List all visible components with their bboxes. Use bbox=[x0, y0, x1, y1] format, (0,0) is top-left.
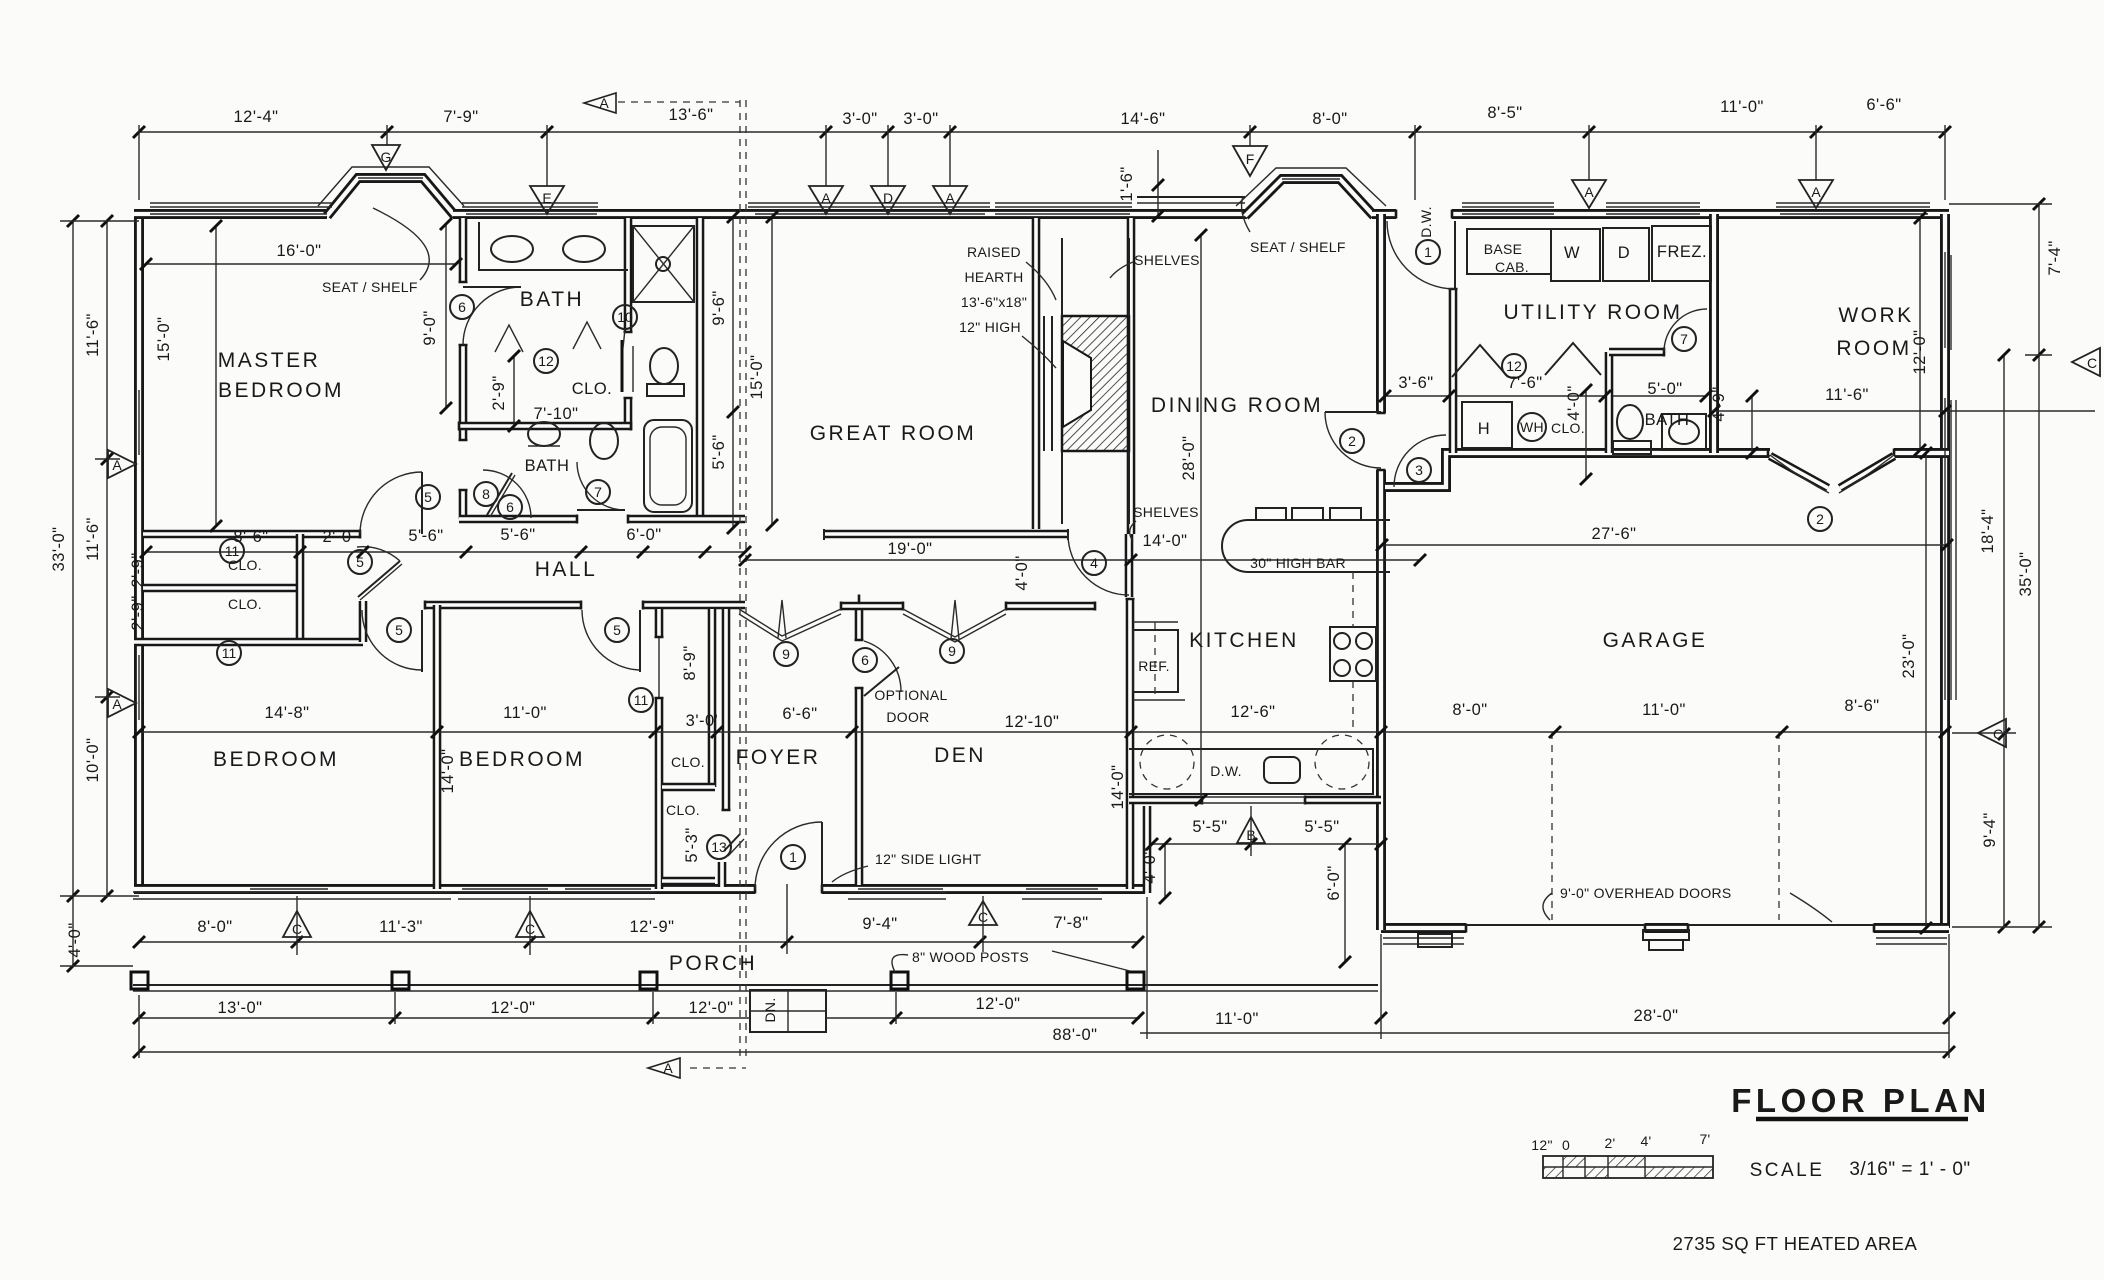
svg-text:5: 5 bbox=[395, 622, 403, 638]
svg-text:7'-6": 7'-6" bbox=[1507, 374, 1542, 392]
svg-text:11'-6": 11'-6" bbox=[84, 517, 102, 561]
svg-text:D.W.: D.W. bbox=[1418, 206, 1434, 238]
svg-text:12'-10": 12'-10" bbox=[1005, 713, 1060, 731]
svg-text:8'-6": 8'-6" bbox=[1844, 697, 1879, 715]
svg-text:CLO.: CLO. bbox=[572, 380, 613, 398]
svg-text:GREAT ROOM: GREAT ROOM bbox=[810, 422, 977, 445]
svg-text:9'-4": 9'-4" bbox=[1981, 812, 1999, 847]
svg-text:2'-9": 2'-9" bbox=[129, 595, 147, 630]
svg-text:7: 7 bbox=[1680, 331, 1688, 347]
svg-text:12'-0": 12'-0" bbox=[1911, 329, 1929, 374]
svg-text:8'-0": 8'-0" bbox=[197, 918, 232, 936]
svg-text:12'-0": 12'-0" bbox=[490, 999, 535, 1017]
svg-text:5'-6": 5'-6" bbox=[408, 527, 443, 545]
svg-text:A: A bbox=[663, 1060, 673, 1076]
svg-text:3: 3 bbox=[1415, 462, 1423, 478]
svg-text:12'-9": 12'-9" bbox=[629, 918, 674, 936]
svg-text:ROOM: ROOM bbox=[1836, 337, 1911, 360]
svg-text:MASTER: MASTER bbox=[218, 349, 321, 372]
svg-text:6'-0": 6'-0" bbox=[1325, 865, 1343, 900]
svg-text:FLOOR PLAN: FLOOR PLAN bbox=[1731, 1082, 1990, 1119]
svg-text:30" HIGH BAR: 30" HIGH BAR bbox=[1250, 555, 1346, 571]
svg-text:14'-6": 14'-6" bbox=[1120, 110, 1165, 128]
svg-text:8" WOOD POSTS: 8" WOOD POSTS bbox=[912, 949, 1029, 965]
svg-text:9: 9 bbox=[782, 646, 790, 662]
svg-text:8'-0": 8'-0" bbox=[1452, 701, 1487, 719]
svg-text:4'-0": 4'-0" bbox=[1565, 385, 1583, 420]
svg-text:FREZ.: FREZ. bbox=[1657, 243, 1707, 261]
svg-text:WORK: WORK bbox=[1838, 304, 1913, 327]
svg-text:14'-0": 14'-0" bbox=[1109, 764, 1127, 809]
svg-text:13: 13 bbox=[711, 839, 727, 855]
svg-text:1: 1 bbox=[789, 849, 797, 865]
svg-text:6'-6": 6'-6" bbox=[782, 705, 817, 723]
svg-text:27'-6": 27'-6" bbox=[1591, 525, 1636, 543]
svg-text:BATH: BATH bbox=[1645, 411, 1690, 429]
svg-text:12'-6": 12'-6" bbox=[1230, 703, 1275, 721]
svg-text:D: D bbox=[1618, 244, 1630, 262]
svg-text:CLO.: CLO. bbox=[228, 557, 262, 573]
svg-text:11: 11 bbox=[222, 645, 237, 661]
svg-text:5: 5 bbox=[424, 489, 432, 505]
svg-text:BATH: BATH bbox=[525, 457, 570, 475]
svg-text:7'-10": 7'-10" bbox=[533, 405, 578, 423]
svg-text:2: 2 bbox=[1348, 433, 1356, 449]
svg-text:4': 4' bbox=[1640, 1133, 1651, 1149]
svg-text:1'-6": 1'-6" bbox=[1118, 166, 1136, 201]
svg-text:12" HIGH: 12" HIGH bbox=[959, 319, 1021, 335]
svg-text:BASE: BASE bbox=[1484, 241, 1523, 257]
svg-text:SCALE: SCALE bbox=[1750, 1160, 1825, 1181]
svg-text:3'-6": 3'-6" bbox=[1398, 374, 1433, 392]
svg-text:BEDROOM: BEDROOM bbox=[459, 748, 585, 771]
svg-text:12'-0": 12'-0" bbox=[688, 999, 733, 1017]
svg-text:SHELVES: SHELVES bbox=[1134, 252, 1200, 268]
svg-text:4'-0": 4'-0" bbox=[1141, 848, 1159, 883]
svg-text:9: 9 bbox=[948, 643, 956, 659]
svg-text:12: 12 bbox=[1506, 358, 1522, 374]
svg-text:A: A bbox=[945, 190, 955, 206]
svg-text:8'-9": 8'-9" bbox=[681, 645, 699, 680]
svg-text:E: E bbox=[542, 190, 551, 206]
svg-text:8'-0": 8'-0" bbox=[1312, 110, 1347, 128]
svg-text:DEN: DEN bbox=[934, 744, 986, 767]
svg-text:A: A bbox=[112, 696, 122, 712]
svg-text:2: 2 bbox=[1816, 511, 1824, 527]
svg-text:9'-0" OVERHEAD DOORS: 9'-0" OVERHEAD DOORS bbox=[1560, 885, 1732, 901]
svg-text:10: 10 bbox=[617, 309, 633, 325]
svg-text:15'-0": 15'-0" bbox=[748, 354, 766, 399]
svg-text:13'-6"x18": 13'-6"x18" bbox=[961, 294, 1027, 310]
svg-text:BATH: BATH bbox=[520, 288, 584, 311]
svg-text:2'-9": 2'-9" bbox=[129, 552, 147, 587]
svg-text:5'-3": 5'-3" bbox=[683, 827, 701, 862]
svg-text:3'-0": 3'-0" bbox=[903, 110, 938, 128]
svg-text:12" SIDE LIGHT: 12" SIDE LIGHT bbox=[875, 851, 982, 867]
svg-text:OPTIONAL: OPTIONAL bbox=[874, 687, 947, 703]
svg-text:11'-0": 11'-0" bbox=[503, 704, 547, 722]
svg-text:19'-0": 19'-0" bbox=[887, 540, 932, 558]
svg-text:G: G bbox=[381, 149, 392, 165]
svg-text:7'-8": 7'-8" bbox=[1053, 914, 1088, 932]
svg-text:9'-0": 9'-0" bbox=[421, 310, 439, 345]
svg-text:11'-0": 11'-0" bbox=[1215, 1010, 1259, 1028]
svg-text:10'-0": 10'-0" bbox=[84, 737, 102, 782]
svg-text:16'-0": 16'-0" bbox=[276, 242, 321, 260]
svg-text:28'-0": 28'-0" bbox=[1633, 1007, 1678, 1025]
svg-text:4'-0": 4'-0" bbox=[1013, 555, 1031, 590]
svg-text:D: D bbox=[883, 190, 893, 206]
svg-text:GARAGE: GARAGE bbox=[1603, 629, 1708, 652]
svg-text:A: A bbox=[599, 95, 609, 111]
svg-text:C: C bbox=[1993, 726, 2003, 742]
svg-text:BEDROOM: BEDROOM bbox=[218, 379, 344, 402]
svg-text:11'-6": 11'-6" bbox=[84, 313, 102, 357]
svg-text:5'-0": 5'-0" bbox=[1647, 380, 1682, 398]
svg-text:REF.: REF. bbox=[1138, 658, 1170, 674]
svg-text:13'-6": 13'-6" bbox=[668, 106, 713, 124]
svg-text:DN.: DN. bbox=[762, 997, 778, 1022]
svg-text:0: 0 bbox=[1562, 1137, 1570, 1153]
svg-text:CLO.: CLO. bbox=[1551, 420, 1585, 436]
svg-text:1: 1 bbox=[1424, 244, 1432, 260]
svg-text:SEAT / SHELF: SEAT / SHELF bbox=[322, 279, 418, 295]
svg-text:H: H bbox=[1478, 420, 1490, 438]
svg-text:11'-6": 11'-6" bbox=[1825, 386, 1869, 404]
svg-text:8'-6": 8'-6" bbox=[233, 528, 268, 546]
svg-text:23'-0": 23'-0" bbox=[1900, 633, 1918, 678]
svg-text:4'-0": 4'-0" bbox=[66, 922, 84, 957]
svg-text:W: W bbox=[1564, 244, 1580, 262]
svg-text:HALL: HALL bbox=[535, 558, 598, 581]
svg-text:5: 5 bbox=[356, 554, 364, 570]
svg-text:4'-9": 4'-9" bbox=[1710, 386, 1728, 421]
svg-text:33'-0": 33'-0" bbox=[50, 526, 68, 571]
svg-text:3/16" = 1' - 0": 3/16" = 1' - 0" bbox=[1849, 1159, 1970, 1180]
svg-text:SHELVES: SHELVES bbox=[1133, 504, 1199, 520]
svg-text:CLO.: CLO. bbox=[666, 802, 700, 818]
svg-text:18'-4": 18'-4" bbox=[1979, 508, 1997, 553]
svg-text:FOYER: FOYER bbox=[736, 746, 821, 769]
svg-text:7': 7' bbox=[1699, 1131, 1710, 1147]
svg-text:5'-5": 5'-5" bbox=[1304, 818, 1339, 836]
svg-text:11: 11 bbox=[634, 692, 649, 708]
svg-text:11'-3": 11'-3" bbox=[379, 918, 423, 936]
svg-text:13'-0": 13'-0" bbox=[217, 999, 262, 1017]
svg-text:28'-0": 28'-0" bbox=[1180, 435, 1198, 480]
svg-text:12: 12 bbox=[538, 353, 554, 369]
svg-text:2'-9": 2'-9" bbox=[490, 375, 508, 410]
svg-text:2735 SQ FT HEATED AREA: 2735 SQ FT HEATED AREA bbox=[1673, 1233, 1918, 1254]
svg-text:A: A bbox=[1584, 184, 1594, 200]
svg-text:88'-0": 88'-0" bbox=[1052, 1026, 1097, 1044]
svg-text:2'-0: 2'-0 bbox=[323, 528, 352, 546]
svg-text:CLO.: CLO. bbox=[671, 754, 705, 770]
svg-text:CLO.: CLO. bbox=[228, 596, 262, 612]
svg-text:14'-8": 14'-8" bbox=[264, 704, 309, 722]
svg-text:5'-5": 5'-5" bbox=[1192, 818, 1227, 836]
svg-text:HEARTH: HEARTH bbox=[964, 269, 1023, 285]
svg-text:WH: WH bbox=[1520, 419, 1544, 435]
svg-text:14'-0": 14'-0" bbox=[439, 748, 457, 793]
svg-text:7'-4": 7'-4" bbox=[2046, 240, 2064, 275]
svg-text:6: 6 bbox=[861, 652, 869, 668]
svg-text:35'-0": 35'-0" bbox=[2017, 551, 2035, 596]
svg-text:15'-0": 15'-0" bbox=[155, 316, 173, 361]
svg-text:A: A bbox=[112, 457, 122, 473]
svg-text:UTILITY ROOM: UTILITY ROOM bbox=[1504, 301, 1683, 324]
svg-text:6'-6": 6'-6" bbox=[1866, 96, 1901, 114]
svg-text:KITCHEN: KITCHEN bbox=[1189, 629, 1299, 652]
svg-text:12'-4": 12'-4" bbox=[233, 108, 278, 126]
svg-text:F: F bbox=[1246, 151, 1255, 167]
svg-text:12'-0": 12'-0" bbox=[975, 995, 1020, 1013]
svg-text:8'-5": 8'-5" bbox=[1487, 104, 1522, 122]
svg-text:A: A bbox=[1811, 184, 1821, 200]
svg-text:4: 4 bbox=[1090, 555, 1098, 571]
svg-text:6: 6 bbox=[458, 299, 466, 315]
svg-text:5'-6": 5'-6" bbox=[710, 434, 728, 469]
svg-text:11'-0": 11'-0" bbox=[1642, 701, 1686, 719]
svg-text:6: 6 bbox=[506, 499, 514, 515]
svg-text:SEAT / SHELF: SEAT / SHELF bbox=[1250, 239, 1346, 255]
svg-text:BEDROOM: BEDROOM bbox=[213, 748, 339, 771]
svg-text:PORCH: PORCH bbox=[669, 952, 757, 975]
svg-text:RAISED: RAISED bbox=[967, 244, 1021, 260]
svg-text:2': 2' bbox=[1604, 1135, 1615, 1151]
svg-text:9'-6": 9'-6" bbox=[710, 290, 728, 325]
svg-text:7'-9": 7'-9" bbox=[443, 108, 478, 126]
svg-text:14'-0": 14'-0" bbox=[1142, 532, 1187, 550]
svg-text:C: C bbox=[2087, 355, 2097, 371]
svg-text:DINING ROOM: DINING ROOM bbox=[1151, 394, 1323, 417]
svg-text:CAB.: CAB. bbox=[1495, 259, 1529, 275]
svg-text:5: 5 bbox=[613, 622, 621, 638]
svg-text:A: A bbox=[821, 190, 831, 206]
svg-text:3'-0': 3'-0' bbox=[686, 712, 719, 730]
svg-text:3'-0": 3'-0" bbox=[842, 110, 877, 128]
svg-text:5'-6": 5'-6" bbox=[500, 526, 535, 544]
svg-text:8: 8 bbox=[482, 486, 490, 502]
svg-text:7: 7 bbox=[594, 484, 602, 500]
svg-text:9'-4": 9'-4" bbox=[862, 915, 897, 933]
svg-text:DOOR: DOOR bbox=[886, 709, 929, 725]
svg-text:D.W.: D.W. bbox=[1210, 763, 1242, 779]
svg-text:6'-0": 6'-0" bbox=[626, 526, 661, 544]
svg-text:11'-0": 11'-0" bbox=[1720, 98, 1764, 116]
svg-text:12": 12" bbox=[1531, 1137, 1552, 1153]
